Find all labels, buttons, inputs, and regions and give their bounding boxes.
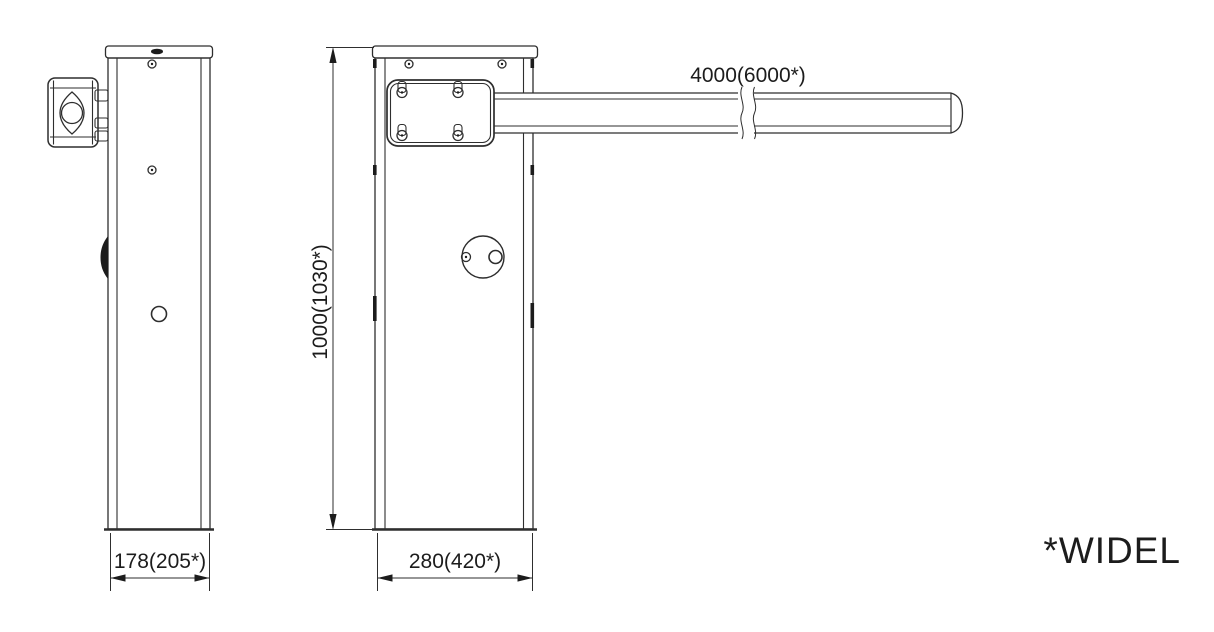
side-screw-top	[148, 60, 156, 68]
side-cap-plug	[151, 49, 163, 55]
edge-tick	[531, 59, 535, 68]
lock-plate	[462, 236, 505, 278]
dim-front-width-label: 280(420*)	[409, 550, 501, 573]
edge-tick	[373, 59, 377, 68]
edge-tick	[531, 303, 535, 328]
mount-plate-outer	[387, 80, 494, 146]
arrowhead-right	[518, 574, 533, 581]
lock-hole	[489, 251, 502, 264]
arrowhead-right	[195, 574, 210, 581]
side-screw-mid	[148, 166, 156, 174]
front-screw-left	[405, 60, 413, 68]
side-body	[108, 58, 210, 529]
side-panel-lines	[117, 58, 201, 529]
front-screw-right	[498, 60, 506, 68]
footnote-widel: *WIDEL	[1043, 530, 1181, 571]
edge-tick	[531, 165, 535, 175]
arrowhead-left	[111, 574, 126, 581]
edge-tick	[373, 165, 377, 175]
edge-tick	[373, 296, 377, 321]
lock-screw-dot	[465, 256, 467, 258]
technical-drawing: 4000(6000*) 1000(1030*) 178(205*) 280(42…	[0, 0, 1214, 632]
dim-height-label: 1000(1030*)	[309, 244, 332, 360]
arm-end-cap	[951, 93, 963, 133]
arrowhead-up	[329, 47, 336, 63]
side-hinge-bump	[101, 236, 109, 279]
bracket-tab-top	[95, 90, 108, 101]
side-view	[48, 46, 214, 530]
label-layer: 4000(6000*) 1000(1030*) 178(205*) 280(42…	[114, 64, 1181, 573]
arrowhead-left	[378, 574, 393, 581]
side-keyhole	[152, 307, 167, 322]
bracket-inner-lines	[50, 81, 96, 145]
lock-plate-circle	[462, 236, 504, 278]
boom-arm	[493, 87, 963, 139]
bracket-tab-bottom	[95, 131, 108, 141]
drawing-canvas: 4000(6000*) 1000(1030*) 178(205*) 280(42…	[0, 0, 1214, 632]
bracket-hub	[62, 103, 83, 124]
dim-height	[326, 48, 374, 530]
linework-layer	[48, 46, 963, 591]
arrowhead-down	[329, 514, 336, 530]
dim-side-width-label: 178(205*)	[114, 550, 206, 573]
side-shaft-bracket	[48, 78, 108, 147]
bracket-lens	[60, 92, 84, 134]
dim-arm-length-label: 4000(6000*)	[690, 64, 806, 87]
bracket-tab-mid	[95, 118, 108, 128]
front-cap	[373, 46, 538, 58]
boom-mount-plate	[387, 80, 494, 146]
